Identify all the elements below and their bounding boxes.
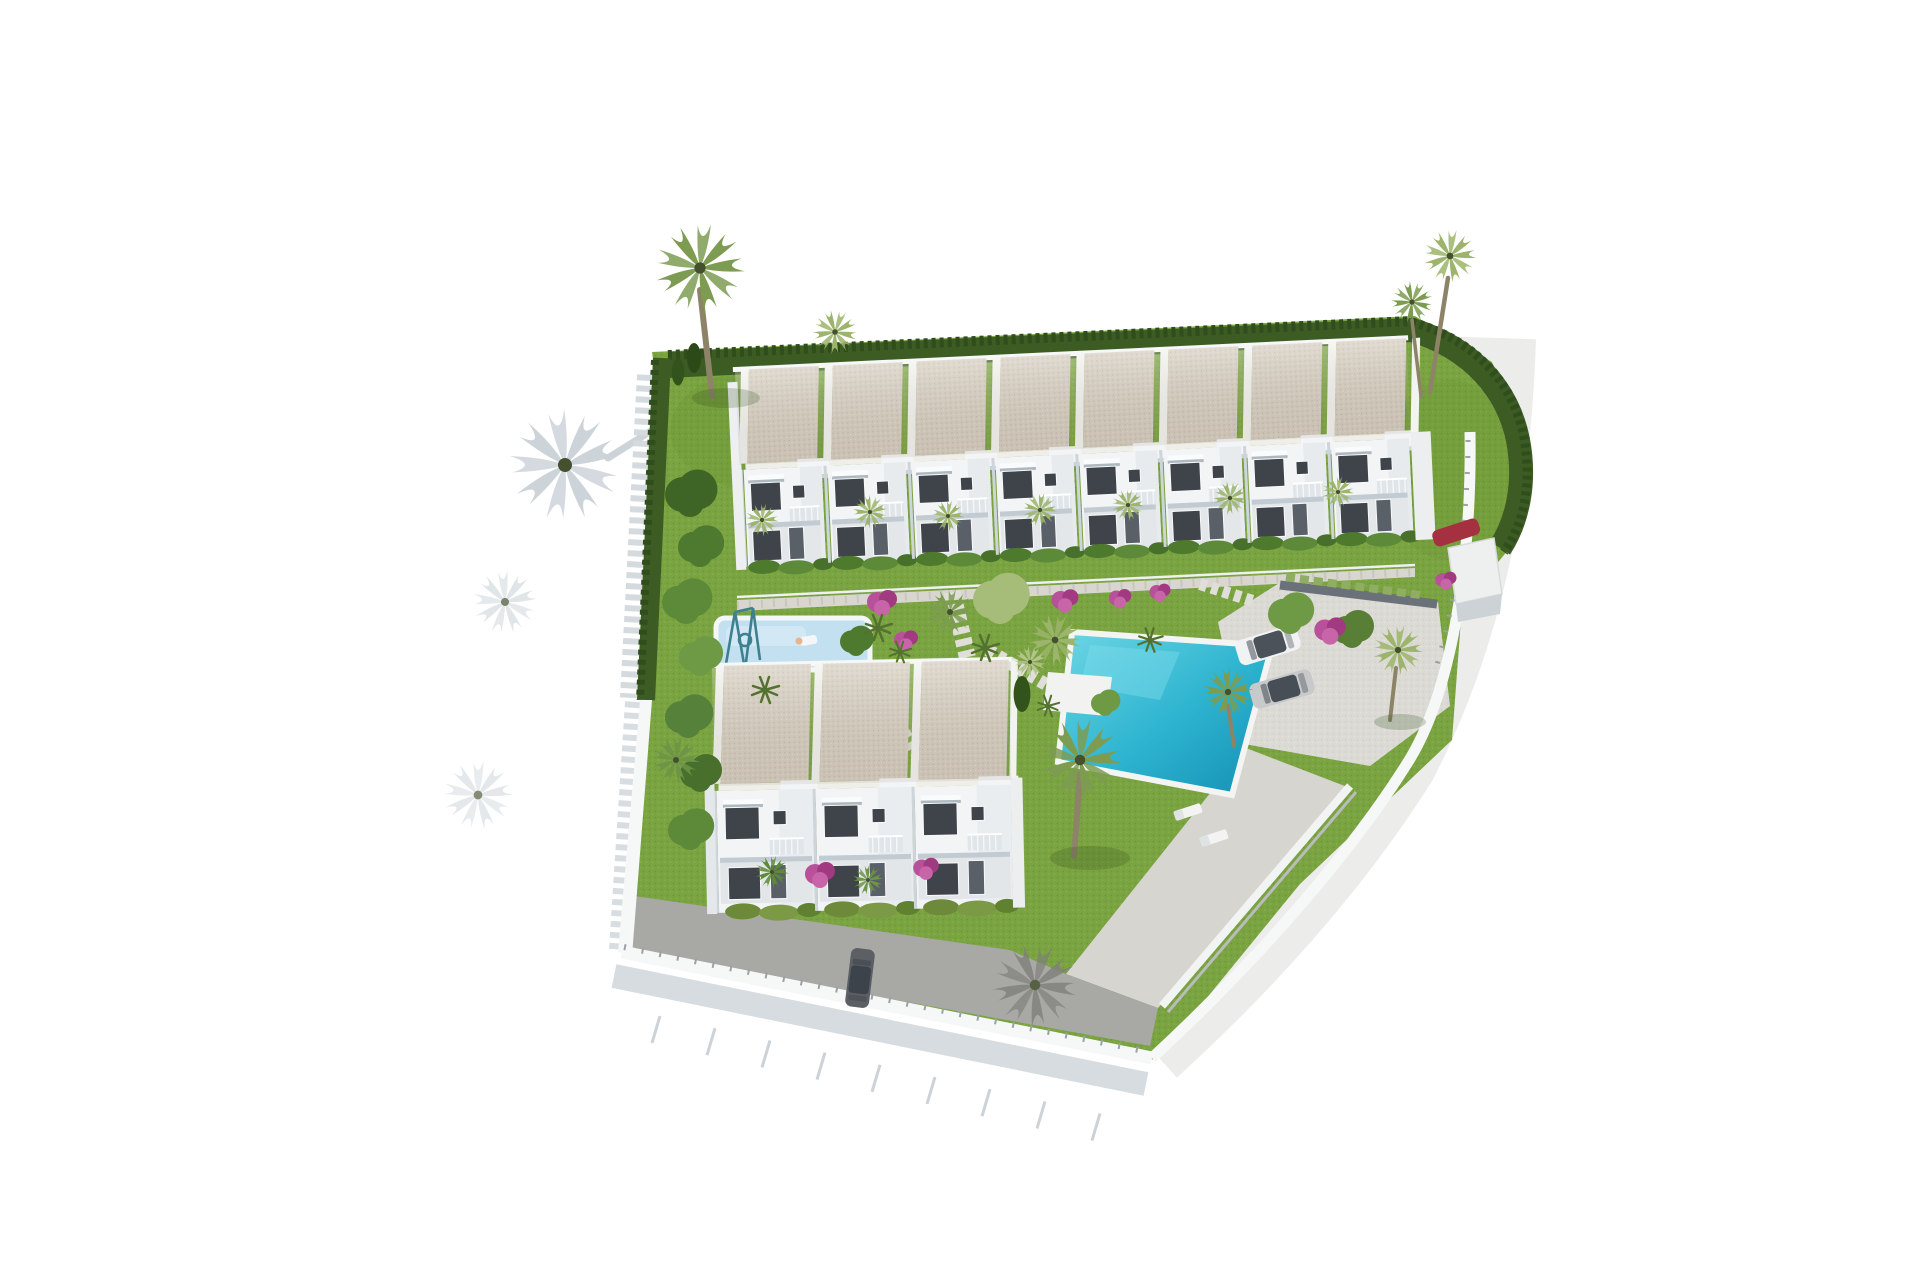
- aerial-render: [0, 0, 1920, 1280]
- cypress: [687, 343, 701, 373]
- curb-tick: [707, 1028, 715, 1055]
- palm-shadow: [467, 564, 542, 639]
- curb-tick: [1092, 1114, 1100, 1141]
- bather: [796, 638, 803, 645]
- palm-tree: [1423, 229, 1477, 283]
- curb-tick: [927, 1077, 935, 1104]
- curb-tick: [1037, 1101, 1045, 1128]
- palm-shadow: [495, 395, 633, 533]
- north-townhouse-row: [727, 334, 1436, 577]
- cypress: [672, 359, 685, 386]
- curb-tick: [982, 1089, 990, 1116]
- curb-tick: [762, 1040, 770, 1067]
- curb-tick: [652, 1016, 660, 1043]
- palm-shadow: [440, 756, 516, 833]
- roof-shading: [712, 660, 1011, 786]
- curb-tick: [872, 1065, 880, 1092]
- cypress: [1014, 676, 1031, 712]
- curb-tick: [817, 1053, 825, 1080]
- render-canvas: [0, 0, 1920, 1280]
